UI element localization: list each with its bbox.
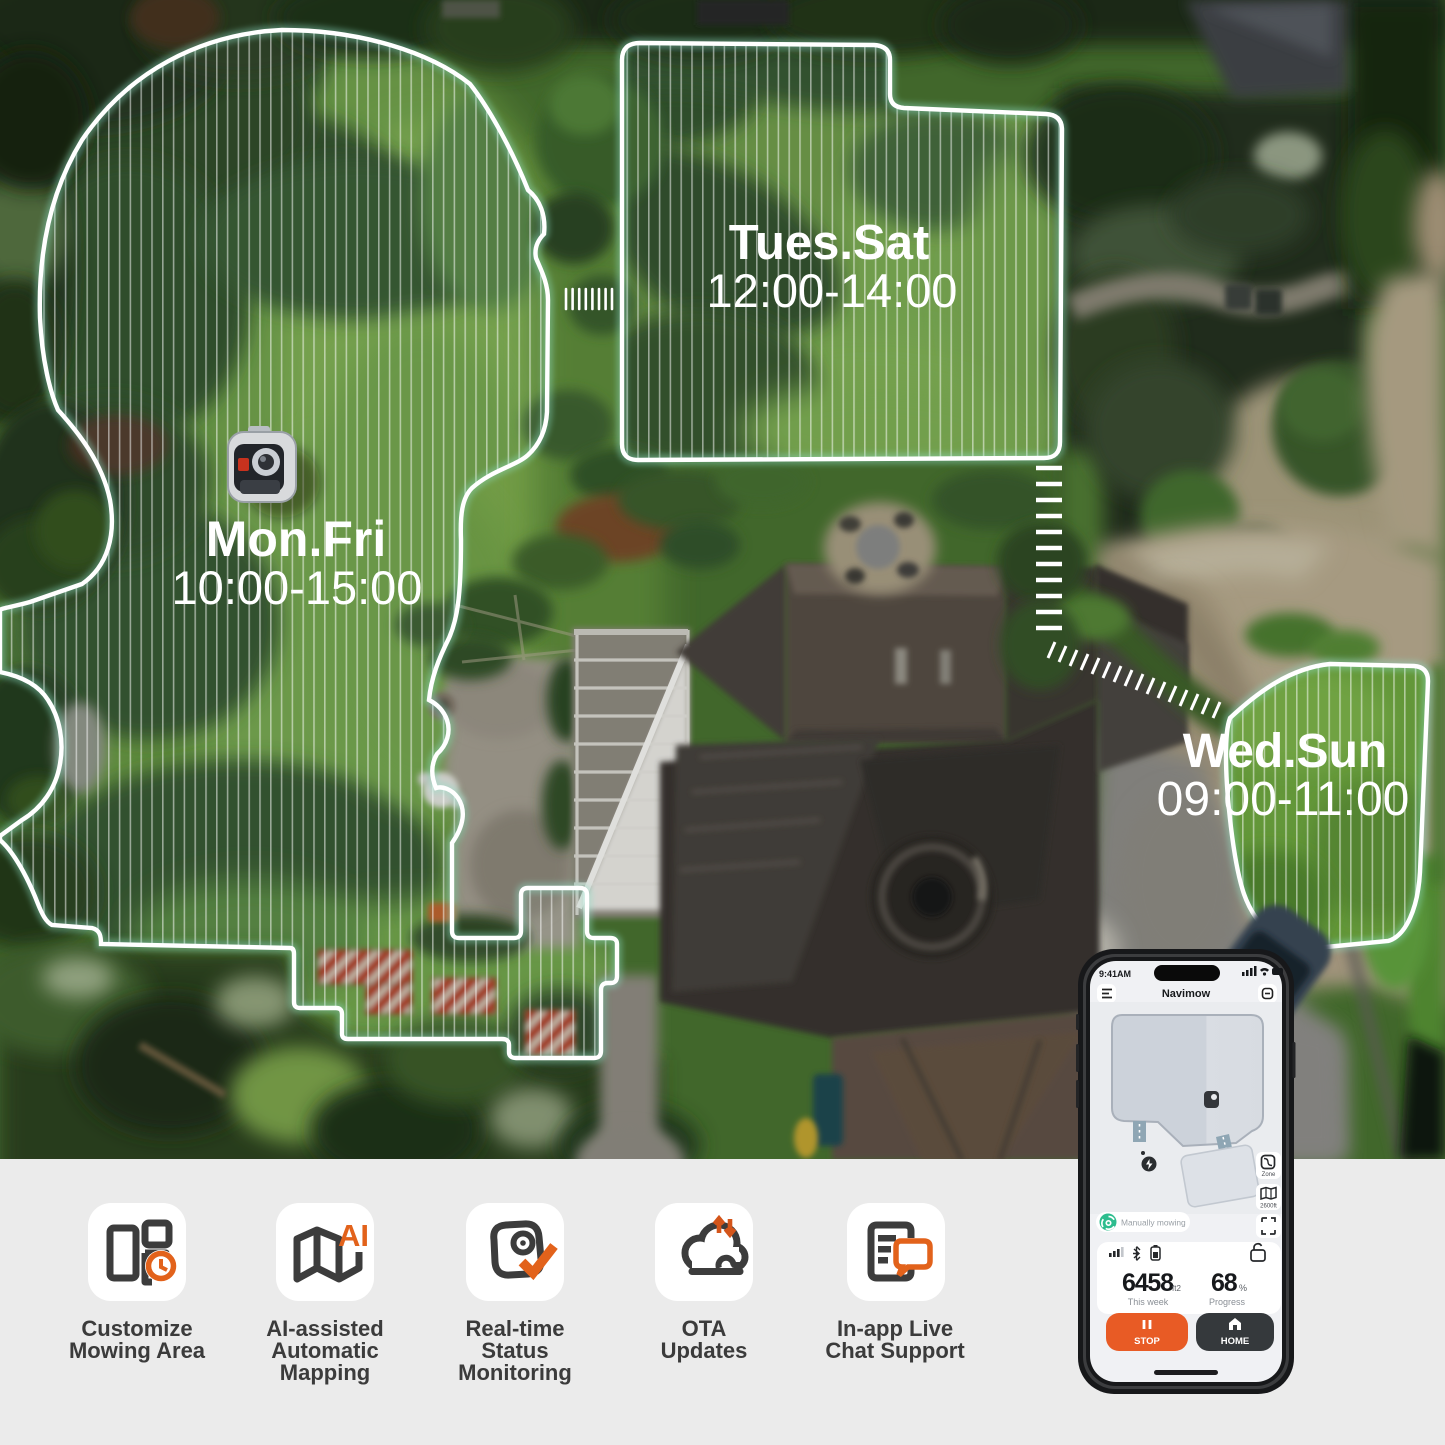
- svg-text:6458: 6458: [1122, 1269, 1174, 1297]
- svg-text:Monitoring: Monitoring: [458, 1360, 572, 1385]
- svg-text:10:00-15:00: 10:00-15:00: [172, 561, 423, 614]
- svg-text:Manually mowing: Manually mowing: [1121, 1218, 1186, 1228]
- svg-text:Tues.Sat: Tues.Sat: [729, 216, 930, 270]
- svg-text:%: %: [1239, 1283, 1247, 1293]
- svg-text:2600ft: 2600ft: [1260, 1204, 1277, 1210]
- svg-text:STOP: STOP: [1134, 1336, 1160, 1347]
- svg-text:09:00-11:00: 09:00-11:00: [1157, 773, 1410, 826]
- svg-text:Mapping: Mapping: [280, 1360, 370, 1385]
- svg-text:AI: AI: [338, 1218, 369, 1253]
- svg-text:This week: This week: [1128, 1297, 1169, 1307]
- svg-text:Updates: Updates: [661, 1338, 748, 1363]
- svg-text:Progress: Progress: [1209, 1297, 1246, 1307]
- svg-text:Mon.Fri: Mon.Fri: [206, 511, 387, 567]
- svg-text:Wed.Sun: Wed.Sun: [1183, 725, 1387, 778]
- svg-text:12:00-14:00: 12:00-14:00: [707, 264, 958, 317]
- svg-text:ft2: ft2: [1172, 1284, 1181, 1293]
- svg-text:Zone: Zone: [1262, 1172, 1276, 1178]
- svg-text:68: 68: [1211, 1269, 1238, 1297]
- svg-text:9:41AM: 9:41AM: [1099, 969, 1131, 979]
- svg-text:Chat Support: Chat Support: [825, 1338, 965, 1363]
- svg-text:Navimow: Navimow: [1162, 988, 1211, 1000]
- svg-text:Mowing Area: Mowing Area: [69, 1338, 206, 1363]
- svg-text:HOME: HOME: [1221, 1336, 1250, 1347]
